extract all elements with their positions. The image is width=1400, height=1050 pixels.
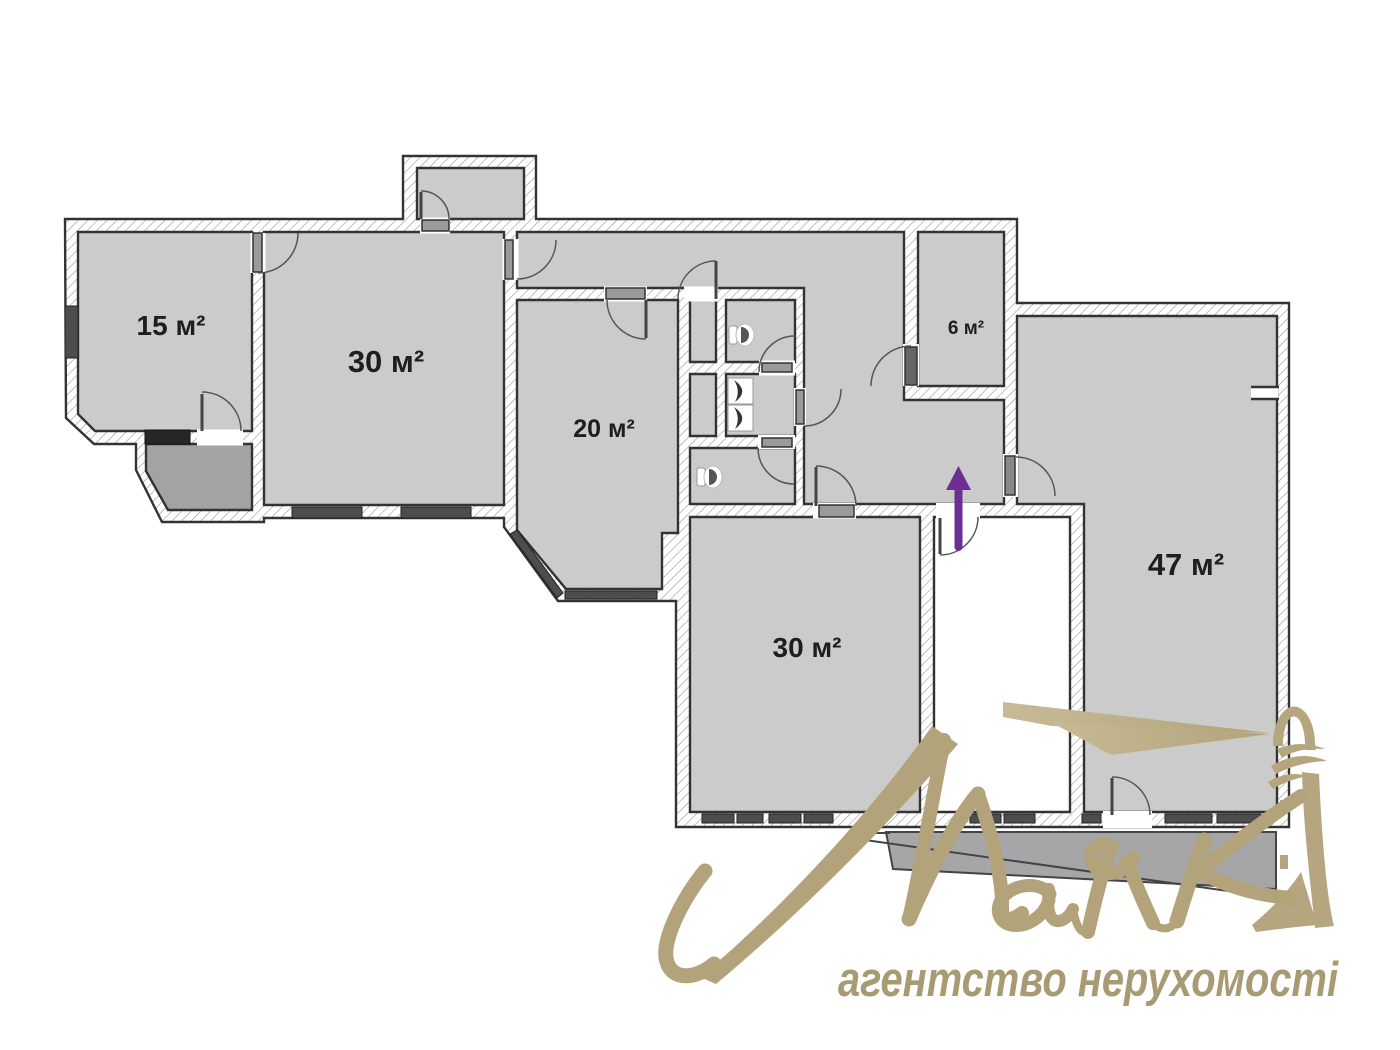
- svg-text:агентство нерухомості: агентство нерухомості: [838, 953, 1340, 1007]
- svg-text:20 м²: 20 м²: [573, 415, 635, 443]
- svg-text:30 м²: 30 м²: [773, 632, 842, 663]
- svg-text:30 м²: 30 м²: [348, 344, 424, 379]
- svg-text:15 м²: 15 м²: [137, 310, 206, 341]
- svg-text:6 м²: 6 м²: [948, 318, 984, 339]
- svg-text:47 м²: 47 м²: [1148, 547, 1224, 582]
